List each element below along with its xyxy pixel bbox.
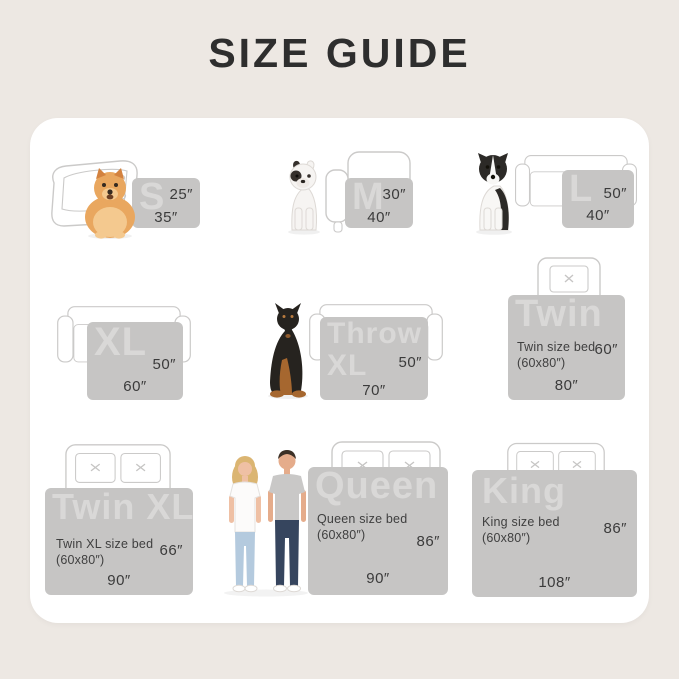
size-label: King xyxy=(482,473,566,508)
size-swatch-m: M 30″ 40″ xyxy=(345,178,413,228)
size-guide-infographic: SIZE GUIDE S 25″ 35″ xyxy=(0,0,679,679)
height-dimension: 60″ xyxy=(595,341,619,358)
size-label: Twin xyxy=(515,296,603,333)
size-label: Throw XL xyxy=(327,318,421,381)
height-dimension: 86″ xyxy=(604,520,628,537)
doberman-dog-illustration xyxy=(260,302,316,400)
width-dimension: 90″ xyxy=(107,572,131,589)
width-dimension: 70″ xyxy=(362,382,386,399)
width-dimension: 80″ xyxy=(555,377,579,394)
size-label: XL xyxy=(94,323,147,362)
size-swatch-twin: Twin Twin size bed (60x80″) 60″ 80″ xyxy=(508,295,625,400)
size-swatch-xl: XL 50″ 60″ xyxy=(87,322,183,400)
size-sublabel: Queen size bed (60x80″) xyxy=(317,511,407,544)
height-dimension: 50″ xyxy=(604,185,628,202)
width-dimension: 35″ xyxy=(154,209,178,226)
size-sublabel: Twin size bed (60x80″) xyxy=(517,339,595,372)
height-dimension: 86″ xyxy=(417,533,441,550)
size-sublabel: King size bed (60x80″) xyxy=(482,514,560,547)
size-label: Queen xyxy=(315,468,438,505)
width-dimension: 40″ xyxy=(586,207,610,224)
double-pillow-bed-outline-icon xyxy=(64,442,172,492)
width-dimension: 108″ xyxy=(538,574,570,591)
size-label: Twin XL xyxy=(52,489,194,524)
size-swatch-queen: Queen Queen size bed (60x80″) 86″ 90″ xyxy=(308,467,448,595)
size-label: L xyxy=(569,171,593,208)
height-dimension: 66″ xyxy=(160,542,184,559)
width-dimension: 40″ xyxy=(367,209,391,226)
pomeranian-dog-illustration xyxy=(76,166,144,240)
page-title: SIZE GUIDE xyxy=(0,30,679,77)
size-swatch-king: King King size bed (60x80″) 86″ 108″ xyxy=(472,470,637,597)
size-swatch-l: L 50″ 40″ xyxy=(562,170,634,228)
width-dimension: 60″ xyxy=(123,378,147,395)
couple-illustration xyxy=(220,446,312,598)
border-collie-illustration xyxy=(468,152,520,236)
french-bulldog-illustration xyxy=(282,160,326,240)
height-dimension: 30″ xyxy=(383,186,407,203)
height-dimension: 50″ xyxy=(153,356,177,373)
size-sublabel: Twin XL size bed (60x80″) xyxy=(56,536,153,569)
height-dimension: 25″ xyxy=(170,186,194,203)
width-dimension: 90″ xyxy=(366,570,390,587)
size-swatch-throw-xl: Throw XL 50″ 70″ xyxy=(320,317,428,400)
height-dimension: 50″ xyxy=(399,354,423,371)
size-swatch-twin-xl: Twin XL Twin XL size bed (60x80″) 66″ 90… xyxy=(45,488,193,595)
